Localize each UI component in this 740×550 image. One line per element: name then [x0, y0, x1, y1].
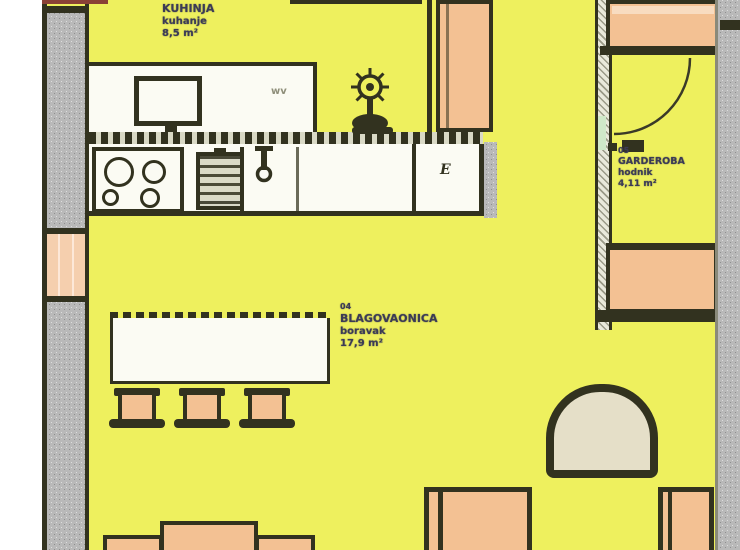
floor-lamp-icon — [351, 68, 393, 134]
door-swing-arc — [614, 58, 690, 134]
sink-faucet-icon — [255, 146, 273, 181]
floor-plan: KUHINJA kuhanje 8,5 m² wv E 05 GARDEROBA — [0, 0, 740, 550]
lineart-overlay — [0, 0, 740, 550]
